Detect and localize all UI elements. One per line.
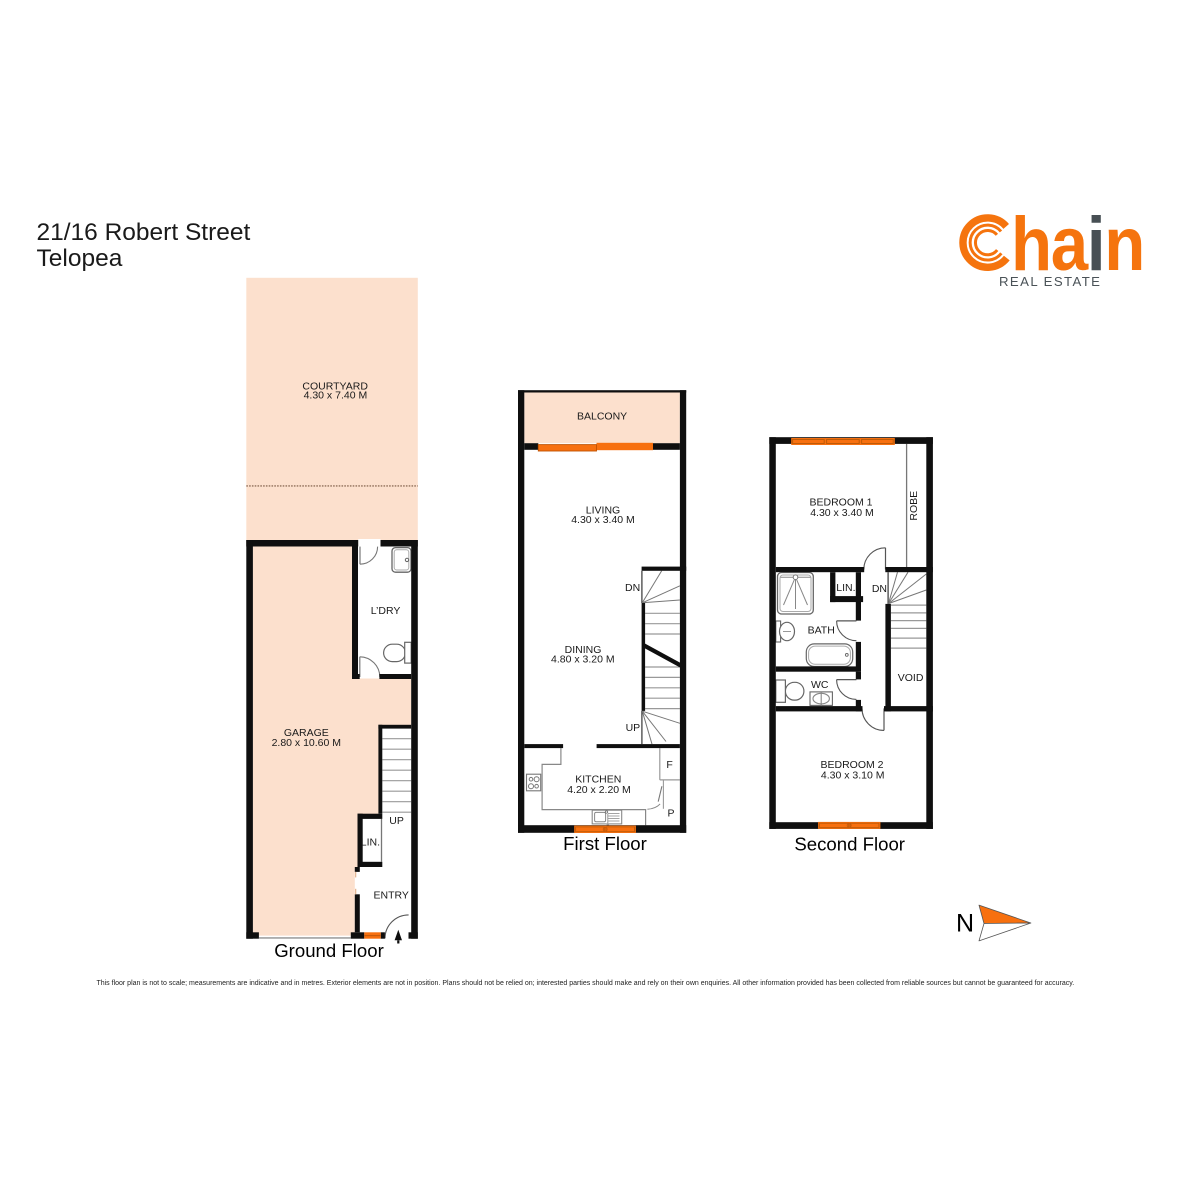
svg-text:4.30 x 3.40 M: 4.30 x 3.40 M — [810, 507, 874, 519]
svg-text:N: N — [956, 910, 974, 938]
svg-text:ROBE: ROBE — [908, 491, 920, 521]
svg-text:4.20 x 2.20 M: 4.20 x 2.20 M — [567, 784, 631, 796]
svg-text:21/16 Robert Street: 21/16 Robert Street — [37, 219, 251, 246]
svg-text:Telopea: Telopea — [37, 245, 123, 272]
svg-text:BATH: BATH — [808, 624, 835, 636]
svg-text:2.80 x 10.60 M: 2.80 x 10.60 M — [272, 737, 341, 749]
svg-text:REAL ESTATE: REAL ESTATE — [999, 274, 1101, 289]
svg-text:First Floor: First Floor — [563, 833, 647, 854]
svg-text:BALCONY: BALCONY — [577, 411, 627, 423]
svg-text:4.30 x 7.40 M: 4.30 x 7.40 M — [304, 390, 368, 402]
svg-text:WC: WC — [811, 679, 829, 691]
svg-text:F: F — [666, 759, 672, 771]
svg-text:ENTRY: ENTRY — [373, 890, 408, 902]
svg-text:This floor plan is not to scal: This floor plan is not to scale; measure… — [96, 980, 1074, 987]
svg-text:4.30 x 3.40 M: 4.30 x 3.40 M — [571, 514, 635, 526]
svg-text:DN: DN — [625, 582, 640, 594]
svg-text:4.80 x 3.20 M: 4.80 x 3.20 M — [551, 654, 615, 666]
svg-text:L’DRY: L’DRY — [371, 605, 401, 617]
svg-text:Ground Floor: Ground Floor — [274, 940, 384, 961]
svg-text:LIN.: LIN. — [361, 837, 380, 849]
svg-text:UP: UP — [389, 815, 404, 827]
svg-text:VOID: VOID — [898, 672, 924, 684]
svg-text:DN: DN — [872, 583, 887, 595]
svg-text:LIN.: LIN. — [836, 582, 855, 594]
svg-text:UP: UP — [626, 722, 641, 734]
svg-text:Second Floor: Second Floor — [794, 834, 905, 855]
svg-text:4.30 x 3.10 M: 4.30 x 3.10 M — [821, 770, 885, 782]
svg-text:P: P — [667, 807, 674, 819]
